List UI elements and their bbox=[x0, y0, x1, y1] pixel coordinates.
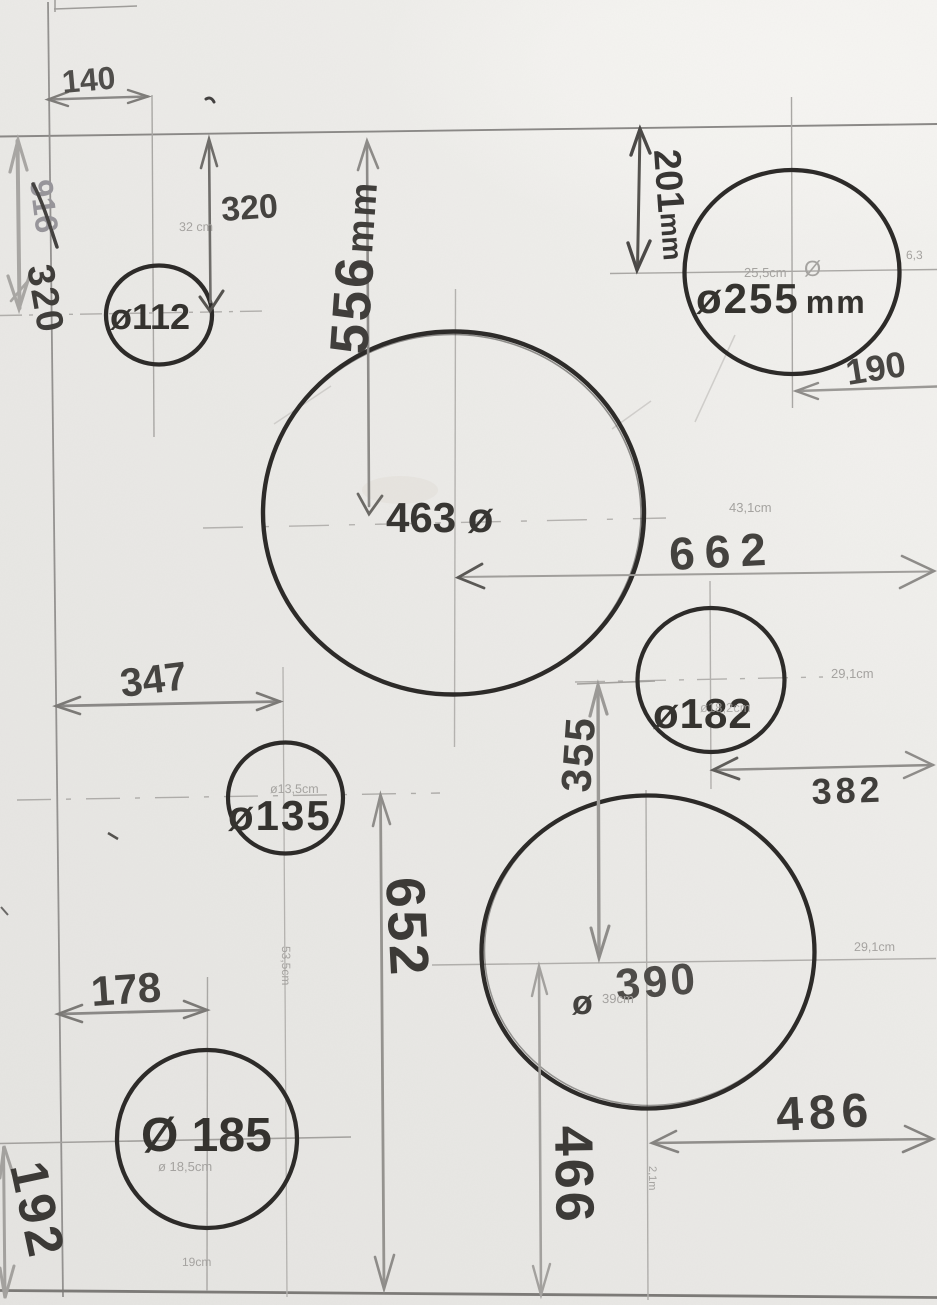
svg-text:ø: ø bbox=[572, 984, 593, 1022]
svg-text:355: 355 bbox=[552, 714, 604, 793]
svg-text:29,1cm: 29,1cm bbox=[831, 666, 874, 681]
svg-text:ø135: ø135 bbox=[228, 792, 332, 839]
svg-text:2,1m: 2,1m bbox=[646, 1166, 658, 1190]
svg-text:29,1cm: 29,1cm bbox=[854, 940, 895, 954]
svg-text:ø112: ø112 bbox=[110, 296, 190, 337]
svg-text:25,5cm: 25,5cm bbox=[744, 265, 787, 280]
svg-text:43,1cm: 43,1cm bbox=[729, 500, 772, 515]
svg-text:19cm: 19cm bbox=[182, 1255, 211, 1269]
svg-text:ø13,5cm: ø13,5cm bbox=[270, 782, 319, 796]
svg-text:662: 662 bbox=[668, 522, 777, 580]
svg-text:Ø: Ø bbox=[804, 256, 821, 281]
svg-text:382: 382 bbox=[811, 769, 884, 812]
svg-text:ø18,2cm: ø18,2cm bbox=[700, 700, 751, 715]
svg-text:486: 486 bbox=[775, 1084, 876, 1142]
svg-text:320: 320 bbox=[220, 187, 279, 229]
svg-text:32 cm: 32 cm bbox=[179, 220, 213, 234]
svg-text:466: 466 bbox=[543, 1125, 605, 1225]
svg-text:39cm: 39cm bbox=[602, 991, 634, 1006]
svg-text:178: 178 bbox=[89, 963, 162, 1015]
svg-text:ø 18,5cm: ø 18,5cm bbox=[158, 1159, 212, 1174]
svg-text:463 ø: 463 ø bbox=[386, 494, 494, 541]
svg-text:140: 140 bbox=[60, 59, 116, 100]
svg-text:6,3: 6,3 bbox=[906, 248, 923, 262]
svg-text:652: 652 bbox=[374, 875, 441, 979]
svg-text:347: 347 bbox=[118, 654, 190, 706]
svg-text:Ø 185: Ø 185 bbox=[141, 1109, 272, 1162]
svg-text:53,5cm: 53,5cm bbox=[279, 946, 293, 985]
